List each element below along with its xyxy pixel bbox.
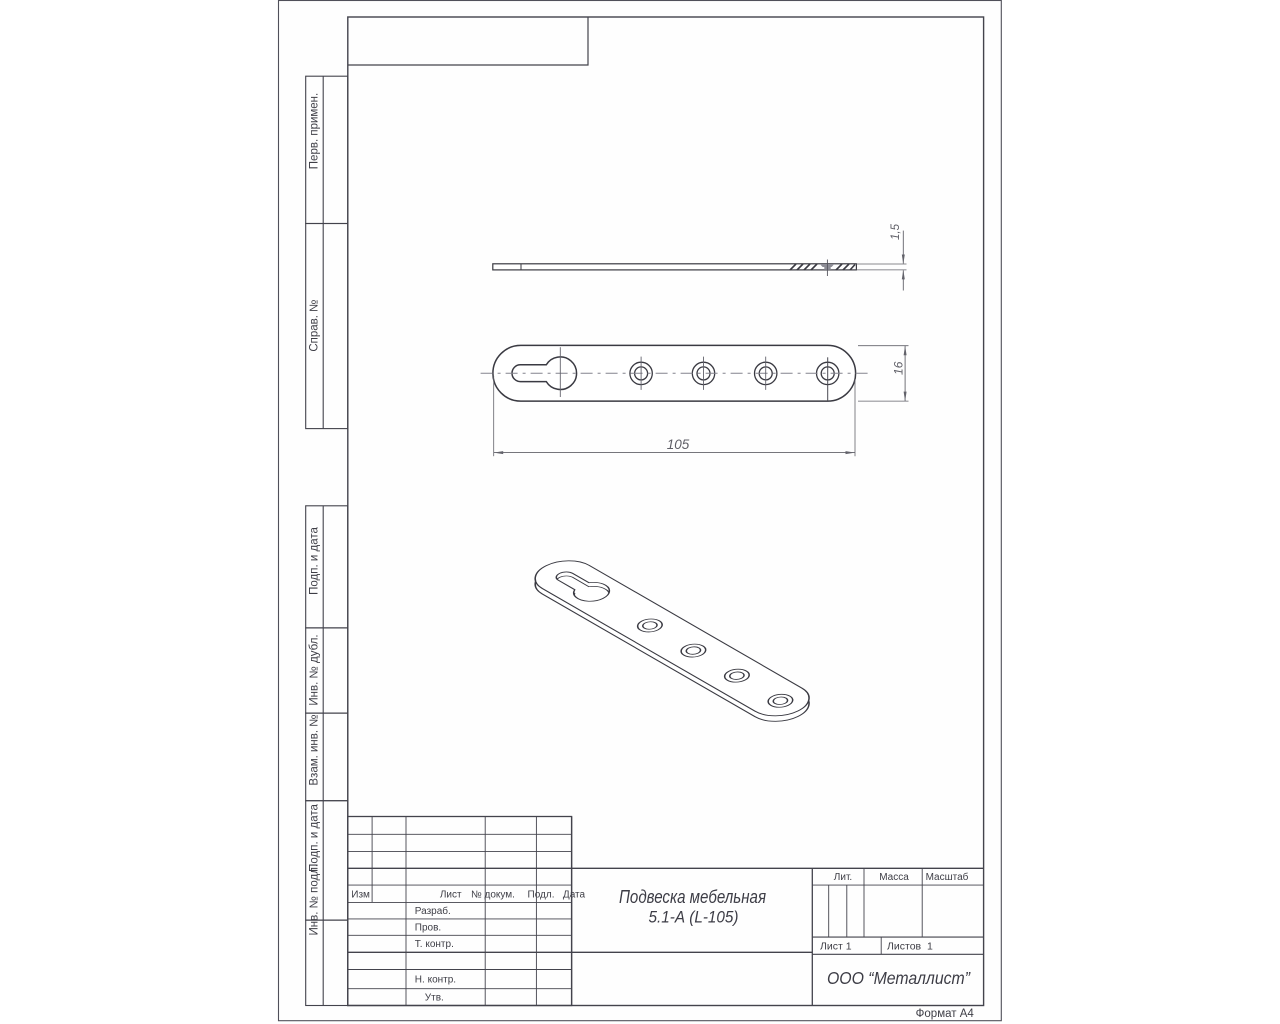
svg-text:Разраб.: Разраб. [415, 905, 451, 917]
svg-text:Подп. и дата: Подп. и дата [309, 804, 321, 872]
svg-text:5.1-А (L-105): 5.1-А (L-105) [649, 909, 739, 927]
svg-text:Инв. № подл.: Инв. № подл. [309, 864, 321, 936]
svg-text:Листов 1: Листов 1 [887, 940, 933, 952]
svg-text:Н. контр.: Н. контр. [415, 975, 456, 986]
svg-text:Лит.: Лит. [834, 872, 852, 883]
svg-text:Перв. примен.: Перв. примен. [309, 93, 321, 169]
svg-text:Масштаб: Масштаб [926, 871, 969, 883]
svg-text:Пров.: Пров. [415, 923, 441, 934]
svg-text:Лист 1: Лист 1 [820, 940, 852, 952]
svg-text:№ докум.: № докум. [471, 890, 515, 901]
svg-text:Лист: Лист [440, 890, 462, 901]
svg-text:Масса: Масса [879, 872, 909, 883]
svg-text:Т. контр.: Т. контр. [415, 939, 454, 950]
svg-text:16: 16 [892, 361, 906, 375]
svg-text:Формат А4: Формат А4 [916, 1008, 975, 1020]
svg-text:Изм: Изм [351, 890, 370, 901]
svg-text:Утв.: Утв. [425, 993, 444, 1004]
svg-text:Подп. и дата: Подп. и дата [309, 527, 321, 595]
svg-text:Взам. инв. №: Взам. инв. № [309, 714, 321, 785]
svg-text:Справ. №: Справ. № [309, 300, 321, 352]
svg-text:Подвеска мебельная: Подвеска мебельная [619, 887, 766, 907]
svg-text:Подл.: Подл. [528, 890, 555, 901]
svg-text:Инв. № дубл.: Инв. № дубл. [309, 634, 321, 705]
svg-text:ООО “Металлист”: ООО “Металлист” [827, 968, 971, 988]
svg-text:105: 105 [667, 437, 690, 452]
svg-text:Дата: Дата [563, 890, 586, 901]
svg-text:1,5: 1,5 [890, 223, 902, 240]
